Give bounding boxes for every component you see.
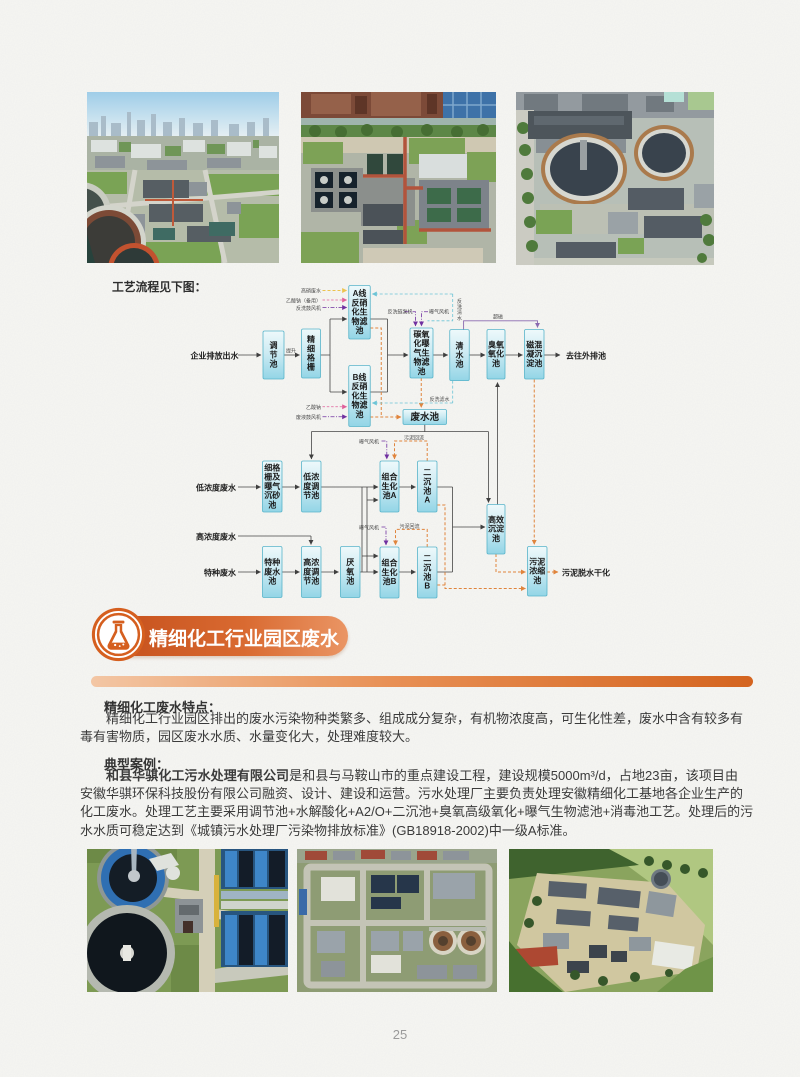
svg-text:反洗鼓风机: 反洗鼓风机 (296, 305, 321, 312)
svg-text:化生: 化生 (352, 307, 368, 317)
svg-text:生化: 生化 (382, 567, 398, 577)
svg-text:节池: 节池 (303, 490, 319, 500)
svg-text:池: 池 (356, 325, 364, 335)
svg-text:池: 池 (418, 366, 426, 376)
svg-text:污泥脱水干化: 污泥脱水干化 (562, 567, 610, 577)
svg-text:曝气: 曝气 (264, 481, 280, 491)
svg-text:节: 节 (270, 349, 278, 359)
svg-text:特种废水: 特种废水 (204, 567, 237, 577)
svg-text:淀池: 淀池 (526, 358, 542, 368)
svg-text:反硝: 反硝 (352, 381, 368, 391)
svg-text:污泥: 污泥 (529, 557, 545, 567)
svg-text:浓缩: 浓缩 (529, 566, 545, 576)
svg-text:度调: 度调 (303, 566, 319, 576)
svg-text:组合: 组合 (382, 558, 399, 568)
svg-text:低浓度废水: 低浓度废水 (195, 482, 237, 492)
svg-text:化曝: 化曝 (414, 338, 431, 348)
svg-text:清: 清 (456, 340, 464, 350)
svg-text:池: 池 (270, 359, 278, 369)
svg-text:超磁: 超磁 (493, 314, 503, 321)
svg-text:化生: 化生 (352, 390, 368, 400)
svg-text:凝沉: 凝沉 (526, 349, 542, 359)
svg-text:曝气风机: 曝气风机 (359, 524, 379, 531)
svg-text:沉淀: 沉淀 (488, 524, 505, 534)
svg-text:碳氧: 碳氧 (414, 329, 430, 339)
svg-text:池: 池 (268, 576, 276, 586)
svg-text:A线: A线 (353, 288, 367, 298)
svg-text:沉: 沉 (423, 476, 431, 486)
svg-text:废液鼓风机: 废液鼓风机 (296, 414, 321, 421)
svg-text:细: 细 (307, 343, 315, 353)
svg-text:高硝废水: 高硝废水 (301, 287, 321, 294)
svg-text:气生: 气生 (413, 347, 430, 357)
svg-text:反硝: 反硝 (352, 297, 368, 307)
svg-text:磁混: 磁混 (526, 339, 542, 349)
svg-text:厌: 厌 (346, 558, 354, 567)
svg-text:高浓: 高浓 (303, 557, 320, 567)
svg-text:污泥回流: 污泥回流 (400, 523, 420, 530)
svg-text:池: 池 (492, 533, 500, 543)
svg-text:组合: 组合 (382, 472, 399, 482)
svg-text:特种: 特种 (264, 557, 280, 567)
svg-text:A: A (424, 496, 430, 505)
svg-text:去往外排池: 去往外排池 (566, 350, 606, 360)
svg-text:废水: 废水 (264, 566, 281, 576)
svg-text:栅及: 栅及 (264, 472, 281, 482)
svg-text:氧: 氧 (345, 566, 354, 576)
svg-text:物滤: 物滤 (414, 357, 430, 367)
svg-text:格: 格 (307, 353, 316, 363)
svg-text:池A: 池A (383, 490, 397, 500)
svg-text:污泥回流: 污泥回流 (404, 434, 424, 441)
svg-text:细格: 细格 (264, 463, 281, 473)
svg-text:高浓度废水: 高浓度废水 (196, 531, 237, 541)
svg-text:二: 二 (423, 554, 431, 563)
svg-text:反洗滤水: 反洗滤水 (430, 396, 450, 403)
svg-text:高效: 高效 (488, 515, 504, 525)
svg-text:度调: 度调 (303, 481, 319, 491)
svg-text:池: 池 (423, 572, 431, 582)
svg-text:废水池: 废水池 (410, 411, 439, 423)
svg-text:乙酸钠（备用）: 乙酸钠（备用） (286, 297, 321, 304)
svg-text:生化: 生化 (382, 481, 398, 491)
svg-text:池: 池 (356, 409, 364, 419)
svg-text:反洗链泵机: 反洗链泵机 (388, 309, 413, 316)
svg-text:低浓: 低浓 (302, 472, 320, 482)
svg-text:B: B (424, 582, 430, 591)
svg-text:调: 调 (270, 340, 278, 350)
svg-text:提升: 提升 (286, 348, 296, 355)
svg-text:水: 水 (455, 350, 465, 360)
svg-text:臭氧: 臭氧 (488, 339, 504, 349)
svg-text:沉砂: 沉砂 (264, 490, 280, 500)
svg-text:池: 池 (268, 499, 276, 509)
svg-text:池: 池 (346, 576, 354, 586)
svg-text:物滤: 物滤 (352, 400, 368, 410)
svg-text:池: 池 (492, 358, 500, 368)
svg-text:池: 池 (533, 575, 541, 585)
svg-text:二: 二 (423, 468, 431, 477)
svg-text:反洗清水: 反洗清水 (457, 298, 462, 322)
svg-text:曝气风机: 曝气风机 (429, 309, 449, 316)
svg-text:沉: 沉 (423, 562, 431, 572)
svg-text:栅: 栅 (307, 362, 315, 372)
svg-text:池B: 池B (383, 576, 397, 586)
svg-text:精: 精 (307, 334, 315, 344)
svg-text:氧化: 氧化 (487, 349, 504, 359)
svg-text:曝气风机: 曝气风机 (359, 438, 379, 445)
svg-text:物滤: 物滤 (352, 316, 368, 326)
svg-text:池: 池 (456, 359, 464, 369)
svg-text:B线: B线 (353, 372, 367, 382)
svg-text:节池: 节池 (303, 576, 319, 586)
svg-text:乙酸钠: 乙酸钠 (306, 404, 321, 411)
svg-text:企业排放出水: 企业排放出水 (190, 350, 240, 360)
svg-text:池: 池 (423, 486, 431, 496)
